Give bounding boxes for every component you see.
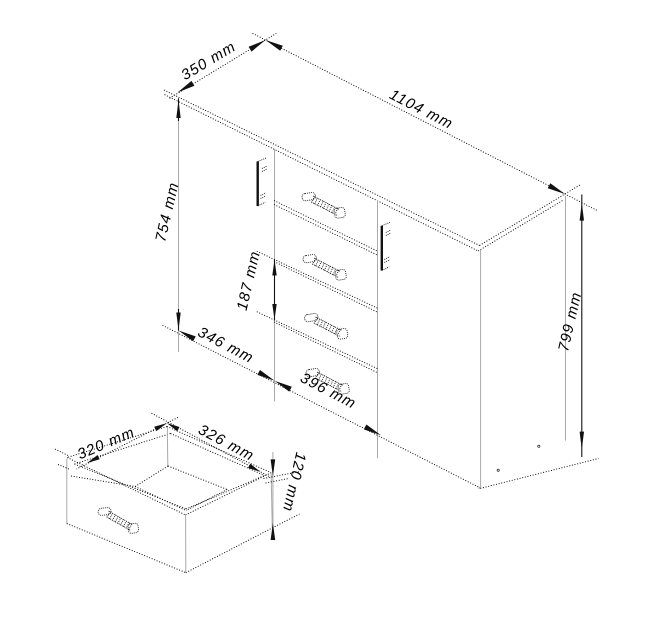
svg-text:346 mm: 346 mm bbox=[195, 324, 257, 367]
svg-text:187 mm: 187 mm bbox=[234, 249, 264, 312]
svg-text:120 mm: 120 mm bbox=[279, 451, 309, 514]
svg-text:320 mm: 320 mm bbox=[75, 424, 138, 463]
svg-text:1104 mm: 1104 mm bbox=[387, 86, 456, 133]
svg-text:799 mm: 799 mm bbox=[555, 290, 585, 353]
svg-text:396 mm: 396 mm bbox=[297, 369, 359, 412]
